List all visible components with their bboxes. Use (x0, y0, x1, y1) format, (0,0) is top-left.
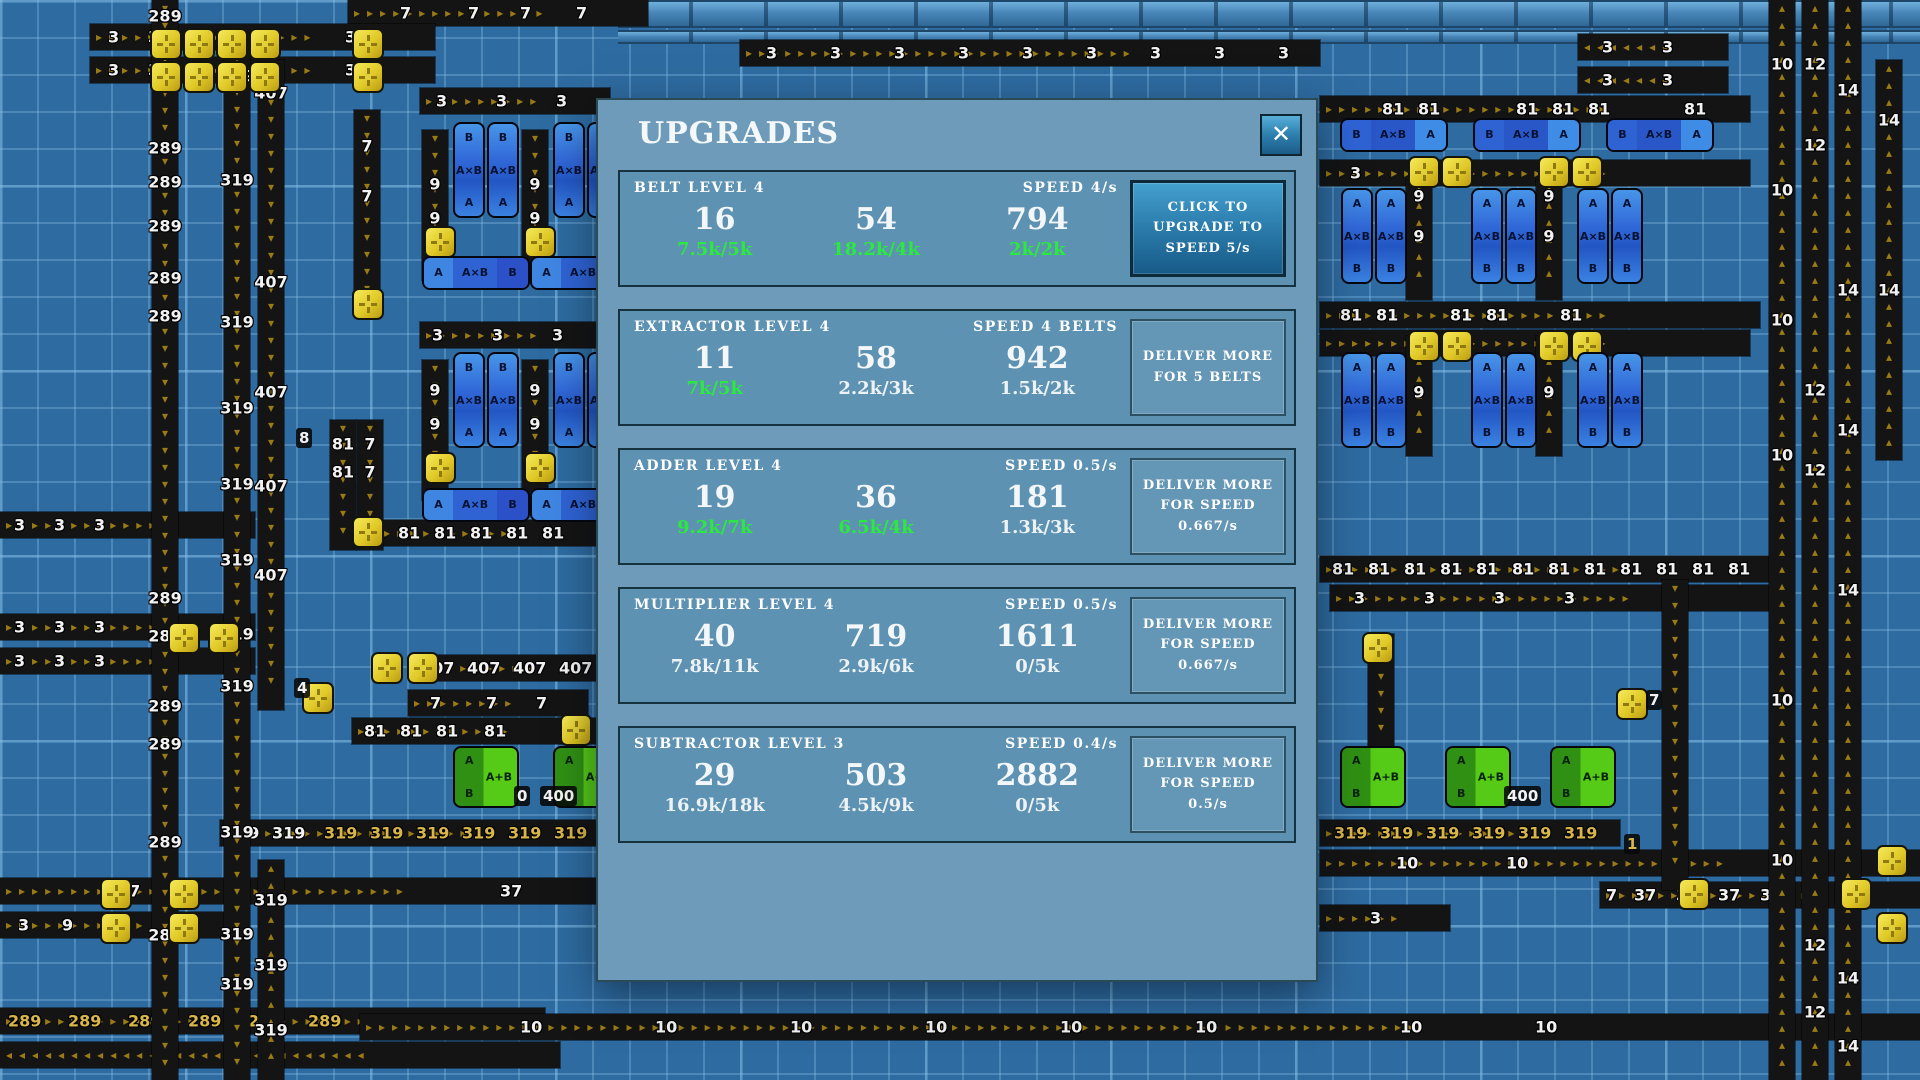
splitter (1840, 878, 1872, 910)
upgrade-button[interactable]: DELIVER MORE FOR SPEED 0.667/s (1130, 597, 1286, 694)
stat-value: 181 (957, 480, 1118, 516)
belt-number: 14 (1837, 1037, 1859, 1056)
upgrades-dialog: UPGRADES ✕ BELT LEVEL 4SPEED 4/s167.5k/5… (598, 100, 1316, 980)
conveyor-belt: ▸▸▸▸▸▸▸▸▸▸▸▸▸▸▸▸▸▸▸▸▸▸▸▸▸▸▸▸▸▸333333333 (740, 40, 1320, 66)
stat-column: 5418.2k/4k (795, 202, 956, 262)
belt-number: 407 (467, 659, 500, 678)
machine-multiplier: AA×BB (1505, 352, 1537, 448)
app-window: ▸▸▸▸▸▸▸▸▸▸▸▸▸▸▸7777▸▸▸▸▸▸▸▸▸▸▸▸▸▸▸▸▸333▸… (0, 0, 1920, 1080)
belt-number: 3 (108, 28, 119, 47)
splitter (100, 912, 132, 944)
stat-value: 1611 (957, 619, 1118, 655)
belt-number: 10 (1195, 1018, 1217, 1037)
belt-number: 10 (790, 1018, 812, 1037)
belt-number: 3 (108, 61, 119, 80)
stat-column: 366.5k/4k (795, 480, 956, 540)
belt-number: 12 (1804, 381, 1826, 400)
belt-number: 3 (556, 92, 567, 111)
belt-number: 14 (1878, 281, 1900, 300)
conveyor-belt: ▸▸▸▸▸▸▸▸▸▸▸▸▸▸▸▸▸▸▸▸▸▸▸3333 (1330, 585, 1780, 611)
conveyor-belt: ▸▸▸▸▸▸▸▸▸▸▸▸▸▸▸▸▸▸▸▸▸▸3 (1320, 160, 1750, 186)
belt-number: 3 (1662, 38, 1673, 57)
splitter (1616, 688, 1648, 720)
belt-number: 10 (1396, 854, 1418, 873)
belt-number: 289 (148, 7, 181, 26)
conveyor-belt: ▸▸▸▸▸▸▸▸▸407407407407 (415, 655, 607, 681)
conveyor-belt: ▸▸▸▸▸▸▸▸▸▸▸▸▸▸▸▸▸▸▸▸▸▸▸81818181818181818… (1320, 556, 1770, 582)
belt-number: 3 (1602, 38, 1613, 57)
machine-multiplier: AA×BB (422, 256, 530, 290)
belt-number: 9 (429, 381, 440, 400)
machine-multiplier: AA×BB (1577, 352, 1609, 448)
conveyor-belt: ▸▸▸▸▸▸▸▸▸▸▸▸▸▸▸▸737373737 (1600, 882, 1920, 908)
belt-number: 7 (361, 137, 372, 156)
belt-number: 3 (14, 652, 25, 671)
belt-number: 319 (220, 925, 253, 944)
belt-number: 289 (68, 1012, 101, 1031)
belt-number: 14 (1837, 969, 1859, 988)
splitter (249, 61, 281, 93)
belt-number: 37 (1634, 886, 1656, 905)
splitter (150, 28, 182, 60)
belt-number: 10 (1400, 1018, 1422, 1037)
splitter (249, 28, 281, 60)
belt-number: 12 (1804, 461, 1826, 480)
belt-number: 7 (430, 694, 441, 713)
belt-number: 7 (468, 4, 479, 23)
belt-number: 7 (536, 694, 547, 713)
stat-column: 1811.3k/3k (957, 480, 1118, 540)
splitter (352, 516, 384, 548)
belt-number: 289 (148, 173, 181, 192)
belt-number: 81 (1728, 560, 1750, 579)
conveyor-belt: ▸▸▸▸▸▸▸▸▸333 (420, 322, 610, 348)
belt-number: 319 (254, 891, 287, 910)
stat-progress: 18.2k/4k (795, 238, 956, 262)
splitter (424, 452, 456, 484)
belt-number: 407 (254, 273, 287, 292)
splitter (1538, 330, 1570, 362)
machine-multiplier: AA×BB (1341, 352, 1373, 448)
belt-number: 81 (1486, 306, 1508, 325)
belt-number: 3 (94, 516, 105, 535)
belt-number: 289 (308, 1012, 341, 1031)
belt-number: 9 (1413, 227, 1424, 246)
belt-number: 12 (1804, 136, 1826, 155)
stat-value: 40 (634, 619, 795, 655)
upgrade-button[interactable]: DELIVER MORE FOR SPEED 0.667/s (1130, 458, 1286, 555)
conveyor-belt: ▸▸▸▸▸▸▸▸▸▸▸▸▸▸▸▸▸▸▸319319319319319319319… (220, 820, 600, 846)
stat-value: 54 (795, 202, 956, 238)
stat-value: 19 (634, 480, 795, 516)
splitter (216, 61, 248, 93)
stat-column: 7192.9k/6k (795, 619, 956, 679)
belt-number: 10 (925, 1018, 947, 1037)
belt-number: 81 (1332, 560, 1354, 579)
conveyor-belt: ▸▸▸▸▸▸▸▸777 (408, 690, 588, 716)
conveyor-belt: ▴ ▴ ▴ ▴ ▴ ▴ ▴ ▴ ▴ ▴ ▴ ▴ ▴ ▴ ▴ ▴ ▴ ▴ ▴ ▴ … (1769, 0, 1795, 1080)
stat-progress: 4.5k/9k (795, 794, 956, 818)
machine-multiplier: AA×BB (1611, 352, 1643, 448)
belt-number: 37 (500, 882, 522, 901)
conveyor-belt: ▾ ▾ ▾ ▾ ▾ ▾ ▾ ▾ ▾ ▾ ▾ ▾ ▾ ▾ ▾ ▾ ▾ ▾ ▾ ▾ … (258, 60, 284, 710)
belt-number: 81 (1656, 560, 1678, 579)
belt-number: 289 (188, 1012, 221, 1031)
stat-value: 2882 (957, 758, 1118, 794)
belt-number: 289 (148, 217, 181, 236)
belt-number: 81 (1516, 100, 1538, 119)
belt-number: 81 (484, 722, 506, 741)
belt-number: 9 (429, 415, 440, 434)
belt-number: 7 (486, 694, 497, 713)
belt-number: 14 (1837, 81, 1859, 100)
dialog-title: UPGRADES (638, 116, 839, 151)
conveyor-belt: ▾ ▾ ▾ ▾ ▾ ▾ ▾ ▾ ▾ ▾ ▾ ▾ ▾ ▾ ▾ ▾ ▾ ▾ ▾ ▾ … (224, 50, 250, 1080)
machine-multiplier: AA×BB (1341, 188, 1373, 284)
belt-number: 3 (1214, 44, 1225, 63)
machine-multiplier: AA×BB (1471, 352, 1503, 448)
belt-number: 3 (958, 44, 969, 63)
machine-multiplier: AA×BB (422, 488, 530, 522)
belt-number: 81 (400, 722, 422, 741)
belt-number: 7 (400, 4, 411, 23)
belt-number: 12 (1804, 936, 1826, 955)
belt-number: 407 (254, 566, 287, 585)
splitter (371, 652, 403, 684)
belt-number: 3 (18, 916, 29, 935)
upgrade-name: BELT LEVEL 4 (634, 180, 765, 196)
stat-column: 117k/5k (634, 341, 795, 401)
belt-number: 3 (432, 326, 443, 345)
belt-number: 81 (1404, 560, 1426, 579)
belt-number: 3 (496, 92, 507, 111)
belt-number: 3 (54, 618, 65, 637)
belt-number: 289 (148, 833, 181, 852)
splitter (1408, 156, 1440, 188)
belt-number: 10 (520, 1018, 542, 1037)
belt-number: 14 (1878, 111, 1900, 130)
conveyor-belt: ▸▸▸▸▸▸▸▸▸▸▸▸▸▸▸▸▸▸▸▸▸▸▸▸▸▸▸▸▸▸▸3737 (0, 878, 600, 904)
upgrade-row: SUBTRACTOR LEVEL 3SPEED 0.4/s2916.9k/18k… (618, 726, 1296, 843)
machine-multiplier: AA×BB (1375, 352, 1407, 448)
belt-number: 319 (554, 824, 587, 843)
machine-adder: ABA+B (1340, 746, 1406, 808)
upgrade-rows: BELT LEVEL 4SPEED 4/s167.5k/5k5418.2k/4k… (618, 170, 1296, 865)
belt-number: 7 (364, 435, 375, 454)
conveyor-belt: ▴ ▴ ▴ ▴ ▴ ▴99 (1536, 180, 1562, 300)
stat-progress: 0/5k (957, 655, 1118, 679)
splitter (352, 28, 384, 60)
belt-number: 9 (62, 916, 73, 935)
belt-number: 407 (254, 383, 287, 402)
belt-number: 7 (576, 4, 587, 23)
stat-progress: 6.5k/4k (795, 516, 956, 540)
belt-number: 3 (14, 516, 25, 535)
belt-number: 319 (1426, 824, 1459, 843)
belt-number: 10 (1060, 1018, 1082, 1037)
belt-number: 9 (1543, 227, 1554, 246)
upgrade-row: ADDER LEVEL 4SPEED 0.5/s199.2k/7k366.5k/… (618, 448, 1296, 565)
stat-value: 29 (634, 758, 795, 794)
belt-number: 9 (1413, 187, 1424, 206)
upgrade-speed: SPEED 0.5/s (1005, 597, 1118, 613)
conveyor-belt: ▸▸▸▸▸▸▸▸▸333 (420, 88, 610, 114)
splitter (183, 28, 215, 60)
belt-number: 3 (14, 618, 25, 637)
belt-number: 3 (54, 652, 65, 671)
belt-number: 10 (1771, 446, 1793, 465)
belt-number: 3 (54, 516, 65, 535)
stat-value: 794 (957, 202, 1118, 238)
upgrade-button[interactable]: DELIVER MORE FOR 5 BELTS (1130, 319, 1286, 416)
machine-adder: ABA+B (1550, 746, 1616, 808)
belt-number: 319 (220, 677, 253, 696)
belt-number: 3 (1424, 589, 1435, 608)
splitter (168, 912, 200, 944)
belt-number: 7 (364, 463, 375, 482)
splitter (168, 622, 200, 654)
stat-progress: 7.8k/11k (634, 655, 795, 679)
belt-number: 0 (514, 786, 530, 806)
belt-number: 37 (1718, 886, 1740, 905)
stat-column: 7942k/2k (957, 202, 1118, 262)
belt-number: 319 (1518, 824, 1551, 843)
splitter (168, 878, 200, 910)
belt-number: 9 (1543, 383, 1554, 402)
stat-progress: 7k/5k (634, 377, 795, 401)
belt-number: 3 (1086, 44, 1097, 63)
belt-number: 289 (148, 589, 181, 608)
belt-number: 319 (220, 551, 253, 570)
machine-multiplier: AA×BB (1611, 188, 1643, 284)
belt-number: 3 (1602, 71, 1613, 90)
stat-progress: 16.9k/18k (634, 794, 795, 818)
splitter (1876, 912, 1908, 944)
upgrade-name: EXTRACTOR LEVEL 4 (634, 319, 831, 335)
belt-number: 289 (148, 697, 181, 716)
upgrade-row: BELT LEVEL 4SPEED 4/s167.5k/5k5418.2k/4k… (618, 170, 1296, 287)
belt-number: 3 (1150, 44, 1161, 63)
belt-number: 9 (1413, 383, 1424, 402)
stat-progress: 2k/2k (957, 238, 1118, 262)
belt-number: 81 (1620, 560, 1642, 579)
belt-number: 3 (1370, 909, 1381, 928)
splitter (352, 288, 384, 320)
belt-number: 319 (220, 975, 253, 994)
stat-progress: 2.2k/3k (795, 377, 956, 401)
splitter (183, 61, 215, 93)
stat-value: 36 (795, 480, 956, 516)
upgrade-row: MULTIPLIER LEVEL 4SPEED 0.5/s407.8k/11k7… (618, 587, 1296, 704)
machine-adder: ABA+B (1445, 746, 1511, 808)
machine-multiplier: BA×BA (487, 352, 519, 448)
belt-number: 3 (894, 44, 905, 63)
splitter (1538, 156, 1570, 188)
belt-number: 81 (1340, 306, 1362, 325)
stat-value: 503 (795, 758, 956, 794)
conveyor-belt: ▸▸▸▸▸▸▸▸▸▸▸▸▸▸▸319319319319319319 (1320, 820, 1620, 846)
belt-number: 81 (1418, 100, 1440, 119)
belt-number: 319 (1472, 824, 1505, 843)
close-icon: ✕ (1271, 121, 1291, 148)
belt-number: 81 (1512, 560, 1534, 579)
upgrade-speed: SPEED 0.4/s (1005, 736, 1118, 752)
conveyor-belt: ▸▸▸▸▸▸▸▸▸▸▸▸333 (0, 512, 255, 538)
machine-multiplier: AA×BB (1375, 188, 1407, 284)
belt-number: 14 (1837, 581, 1859, 600)
splitter (424, 226, 456, 258)
splitter (1678, 878, 1710, 910)
belt-number: 81 (1692, 560, 1714, 579)
belt-number: 81 (1584, 560, 1606, 579)
belt-number: 81 (1588, 100, 1610, 119)
machine-multiplier: BA×BA (1473, 118, 1581, 152)
belt-number: 3 (1278, 44, 1289, 63)
belt-number: 81 (1376, 306, 1398, 325)
belt-number: 14 (1837, 281, 1859, 300)
belt-number: 81 (364, 722, 386, 741)
belt-number: 4 (294, 678, 310, 698)
belt-number: 289 (148, 735, 181, 754)
belt-number: 81 (398, 524, 420, 543)
belt-number: 319 (254, 1021, 287, 1040)
belt-number: 81 (506, 524, 528, 543)
belt-number: 10 (1771, 55, 1793, 74)
belt-number: 400 (540, 786, 577, 806)
conveyor-belt: ◂◂◂◂◂◂◂33 (1578, 34, 1728, 60)
belt-number: 14 (1837, 421, 1859, 440)
belt-number: 319 (220, 475, 253, 494)
stat-progress: 2.9k/6k (795, 655, 956, 679)
stat-column: 2916.9k/18k (634, 758, 795, 818)
belt-number: 3 (766, 44, 777, 63)
splitter (524, 226, 556, 258)
belt-number: 319 (324, 824, 357, 843)
stat-progress: 9.2k/7k (634, 516, 795, 540)
splitter (150, 61, 182, 93)
conveyor-belt: ▸▸▸▸▸▸▸▸▸▸▸▸▸▸▸▸▸▸▸▸▸▸▸▸▸▸▸▸▸▸▸▸▸▸▸▸▸▸▸▸… (360, 1014, 1920, 1040)
belt-number: 7 (520, 4, 531, 23)
belt-number: 319 (370, 824, 403, 843)
belt-number: 407 (559, 659, 592, 678)
belt-number: 10 (1771, 851, 1793, 870)
conveyor-belt: ▾ ▾ ▾ ▾ ▾ ▾ ▾ ▾ ▾ ▾ ▾ ▾ ▾ ▾ ▾ ▾ ▾ (1662, 580, 1688, 890)
belt-number: 319 (416, 824, 449, 843)
close-button[interactable]: ✕ (1260, 114, 1302, 156)
stat-column: 199.2k/7k (634, 480, 795, 540)
belt-number: 7 (1646, 690, 1662, 710)
belt-number: 319 (220, 399, 253, 418)
belt-number: 81 (332, 435, 354, 454)
belt-number: 10 (1771, 181, 1793, 200)
belt-number: 319 (220, 313, 253, 332)
machine-multiplier: AA×BB (1577, 188, 1609, 284)
belt-number: 3 (1350, 164, 1361, 183)
belt-number: 9 (429, 209, 440, 228)
belt-number: 81 (436, 722, 458, 741)
belt-number: 319 (1564, 824, 1597, 843)
splitter (1876, 845, 1908, 877)
belt-number: 289 (148, 307, 181, 326)
upgrade-name: SUBTRACTOR LEVEL 3 (634, 736, 845, 752)
belt-number: 81 (1476, 560, 1498, 579)
belt-number: 3 (1564, 589, 1575, 608)
upgrade-button[interactable]: DELIVER MORE FOR SPEED 0.5/s (1130, 736, 1286, 833)
conveyor-belt: ▸▸▸▸▸▸3 (1320, 905, 1450, 931)
stat-value: 719 (795, 619, 956, 655)
machine-multiplier: BA×BA (553, 122, 585, 218)
upgrade-name: MULTIPLIER LEVEL 4 (634, 597, 835, 613)
splitter (560, 714, 592, 746)
belt-number: 9 (429, 175, 440, 194)
conveyor-belt: ◂◂◂◂◂◂◂33 (1578, 67, 1728, 93)
splitter (407, 652, 439, 684)
splitter (1362, 632, 1394, 664)
upgrade-speed: SPEED 0.5/s (1005, 458, 1118, 474)
splitter (1441, 156, 1473, 188)
belt-number: 9 (529, 209, 540, 228)
belt-number: 81 (1440, 560, 1462, 579)
machine-multiplier: BA×BA (553, 352, 585, 448)
conveyor-belt: ▴ ▴ ▴ ▴ ▴ ▴ ▴ ▴ ▴ ▴ ▴ ▴ ▴ ▴ ▴ ▴ ▴ ▴ ▴ ▴ … (1835, 0, 1861, 1080)
stat-column: 9421.5k/2k (957, 341, 1118, 401)
machine-multiplier: BA×BA (453, 122, 485, 218)
belt-number: 9 (529, 415, 540, 434)
belt-number: 10 (1506, 854, 1528, 873)
belt-number: 81 (1450, 306, 1472, 325)
splitter (1571, 156, 1603, 188)
belt-number: 10 (1771, 311, 1793, 330)
belt-number: 81 (470, 524, 492, 543)
upgrade-speed: SPEED 4/s (1023, 180, 1118, 196)
belt-number: 7 (1606, 886, 1617, 905)
belt-number: 3 (436, 92, 447, 111)
belt-number: 319 (1380, 824, 1413, 843)
belt-number: 81 (1552, 100, 1574, 119)
upgrade-button[interactable]: CLICK TO UPGRADE TO SPEED 5/s (1130, 180, 1286, 277)
upgrade-row: EXTRACTOR LEVEL 4SPEED 4 BELTS117k/5k582… (618, 309, 1296, 426)
conveyor-belt: ▸▸▸▸▸▸▸▸▸▸▸▸▸▸▸7777 (348, 0, 648, 26)
belt-number: 9 (529, 381, 540, 400)
stat-progress: 0/5k (957, 794, 1118, 818)
splitter (216, 28, 248, 60)
belt-number: 10 (655, 1018, 677, 1037)
belt-number: 12 (1804, 1003, 1826, 1022)
conveyor-belt: ▸▸▸▸▸▸▸▸▸▸▸▸818181818181 (352, 520, 604, 546)
machine-multiplier: BA×BA (1340, 118, 1448, 152)
stat-progress: 7.5k/5k (634, 238, 795, 262)
belt-number: 81 (1368, 560, 1390, 579)
conveyor-belt: ▴ ▴ ▴ ▴ ▴ ▴ ▴ ▴ ▴ ▴ ▴ ▴ ▴ ▴ ▴ ▴ ▴ ▴ ▴ ▴ … (1876, 60, 1902, 460)
belt-number: 407 (513, 659, 546, 678)
belt-number: 81 (1684, 100, 1706, 119)
stat-progress: 1.3k/3k (957, 516, 1118, 540)
machine-multiplier: AA×BB (1471, 188, 1503, 284)
belt-number: 3 (1662, 71, 1673, 90)
belt-number: 400 (1504, 786, 1541, 806)
belt-number: 1 (1624, 834, 1640, 854)
belt-number: 10 (1771, 691, 1793, 710)
belt-number: 81 (1560, 306, 1582, 325)
belt-number: 81 (1382, 100, 1404, 119)
stat-column: 167.5k/5k (634, 202, 795, 262)
stat-value: 11 (634, 341, 795, 377)
belt-number: 81 (332, 463, 354, 482)
splitter (100, 878, 132, 910)
belt-number: 9 (529, 175, 540, 194)
belt-number: 319 (220, 171, 253, 190)
belt-number: 3 (1494, 589, 1505, 608)
